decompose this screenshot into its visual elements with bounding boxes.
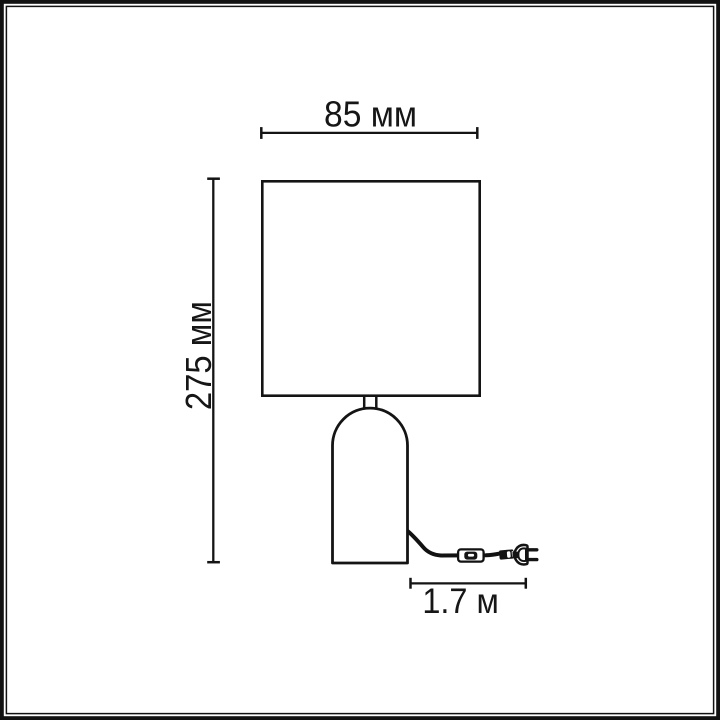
svg-text:1.7 м: 1.7 м — [422, 581, 499, 621]
svg-text:85 мм: 85 мм — [324, 94, 417, 135]
svg-text:275 мм: 275 мм — [178, 301, 219, 410]
